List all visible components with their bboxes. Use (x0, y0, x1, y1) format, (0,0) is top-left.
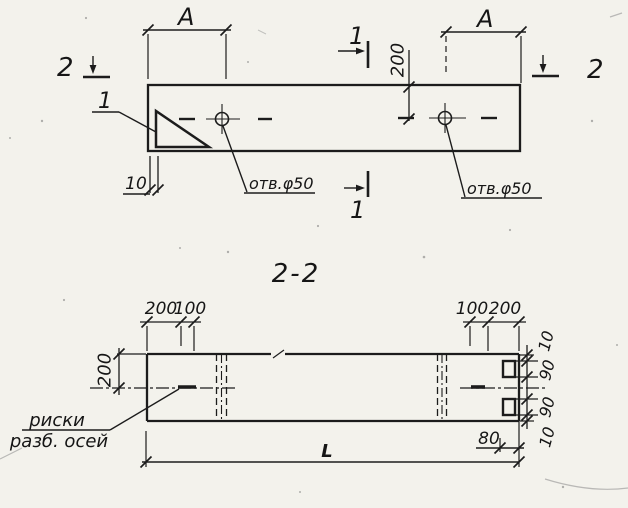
section-1-label: 1 (350, 196, 365, 224)
speck (247, 61, 249, 63)
detail-1-callout: 1 (92, 89, 156, 132)
speck (562, 486, 564, 488)
dim-200-label: 200 (489, 299, 521, 319)
drawing-sheet: 1 10 A A 200 (0, 0, 628, 508)
section-1-label: 1 (349, 22, 364, 50)
leader-line (446, 125, 465, 197)
section-marker-1-bottom: 1 (344, 171, 368, 224)
leader-line (223, 126, 247, 192)
break-mark (273, 350, 284, 358)
plan-view: 1 10 A A 200 (57, 3, 604, 224)
hole-diameter-label: отв.φ50 (467, 179, 532, 198)
hole-label-left: отв.φ50 (223, 126, 315, 193)
speck (299, 491, 301, 493)
dim-10-label: 10 (534, 329, 558, 354)
section-marker-1-top: 1 (338, 22, 368, 68)
section-view: 2-2 (9, 259, 559, 468)
section-title: 2-2 (272, 259, 320, 289)
section-outline (147, 350, 519, 421)
speck (9, 137, 11, 139)
section-marker-2-right: 2 (532, 55, 604, 85)
dim-100-label: 100 (174, 299, 206, 319)
dim-10-label: 10 (535, 425, 559, 450)
speck (616, 344, 618, 346)
axis-note-line2: разб. осей (9, 431, 109, 452)
dim-10-label: 10 (125, 174, 147, 194)
scan-artifact (258, 30, 266, 34)
leader-line (110, 389, 179, 430)
speck (41, 120, 43, 122)
speck (317, 225, 319, 227)
dims-top-right: 100 200 (456, 299, 526, 351)
scan-artifact (545, 479, 628, 489)
speck (227, 251, 229, 253)
corner-triangle (156, 111, 209, 147)
leader-line (119, 112, 156, 132)
dim-80-label: 80 (478, 429, 500, 449)
corner-triangle-detail (156, 111, 209, 147)
dim-100-label: 100 (456, 299, 488, 319)
dim-200-label: 200 (145, 299, 177, 319)
detail-1-label: 1 (98, 89, 112, 114)
groove-top (503, 361, 515, 377)
groove-bottom (503, 399, 515, 415)
dim-a-right: A (441, 5, 527, 83)
speck (509, 229, 511, 231)
hole-label-right: отв.φ50 (446, 125, 542, 198)
dim-80: 80 (476, 421, 525, 467)
speck (423, 256, 426, 259)
dim-200-label: 200 (94, 353, 115, 387)
section-2-label: 2 (57, 53, 74, 83)
dim-a-label: A (475, 5, 493, 33)
dim-10: 10 (123, 156, 164, 196)
axis-note-line1: риски (28, 410, 85, 431)
section-2-label: 2 (587, 55, 604, 85)
dim-90-label: 90 (535, 358, 559, 383)
hole-left (179, 104, 272, 134)
hidden-hole-lines-right (438, 354, 447, 421)
dim-200-label: 200 (387, 43, 408, 77)
scan-artifact (610, 13, 622, 17)
speck (179, 247, 181, 249)
hole-diameter-label: отв.φ50 (249, 174, 314, 193)
dims-top-left: 200 100 (140, 299, 206, 351)
speck (591, 120, 593, 122)
speck (63, 299, 65, 301)
dim-length: L (141, 431, 525, 468)
dim-a-label: A (176, 3, 194, 31)
technical-drawing: 1 10 A A 200 (0, 0, 628, 508)
speck (85, 17, 87, 19)
dim-l-label: L (321, 441, 332, 462)
right-dimension-chain: 10 90 90 10 (516, 329, 559, 450)
section-marker-2-left: 2 (57, 53, 110, 83)
dim-200-plan: 200 (387, 43, 414, 125)
dim-a-left: A (143, 3, 232, 79)
longitudinal-centerline (90, 387, 548, 388)
dim-90-label: 90 (535, 395, 559, 420)
